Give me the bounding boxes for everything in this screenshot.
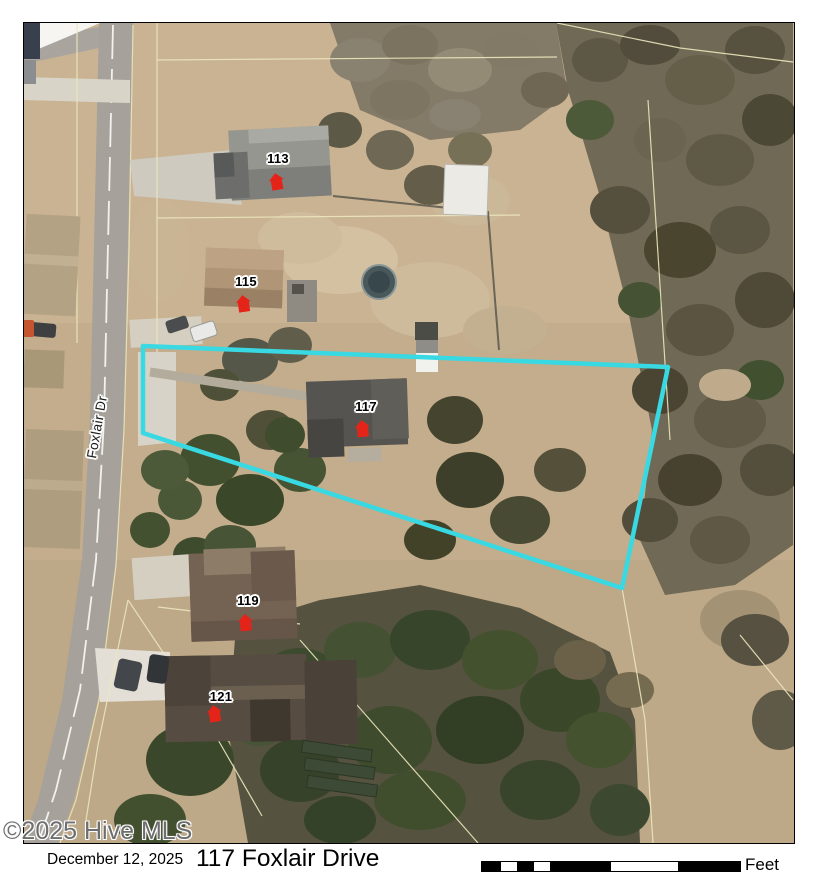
page-title: 117 Foxlair Drive [196, 845, 379, 873]
house-119-roof [188, 546, 297, 642]
scale-bar-segment [678, 862, 740, 871]
aerial-imagery [24, 23, 794, 843]
pool [362, 265, 396, 299]
scale-bar-segment [517, 862, 534, 871]
scale-unit-label: Feet [745, 855, 779, 875]
report-date: December 12, 2025 [47, 851, 183, 869]
shed-boundary [415, 322, 438, 372]
scale-bar-segment [482, 862, 501, 871]
aerial-map[interactable] [23, 22, 795, 844]
scale-bar-segment [534, 862, 550, 871]
shed-white [443, 164, 489, 216]
scale-bar-segment [501, 862, 517, 871]
house-121-roof [164, 653, 358, 747]
scale-bar-segment [550, 862, 611, 871]
house-115-roof [204, 248, 284, 309]
scale-bar-segment [611, 862, 678, 871]
scale-bar [481, 861, 741, 872]
house-113-roof [212, 125, 332, 201]
